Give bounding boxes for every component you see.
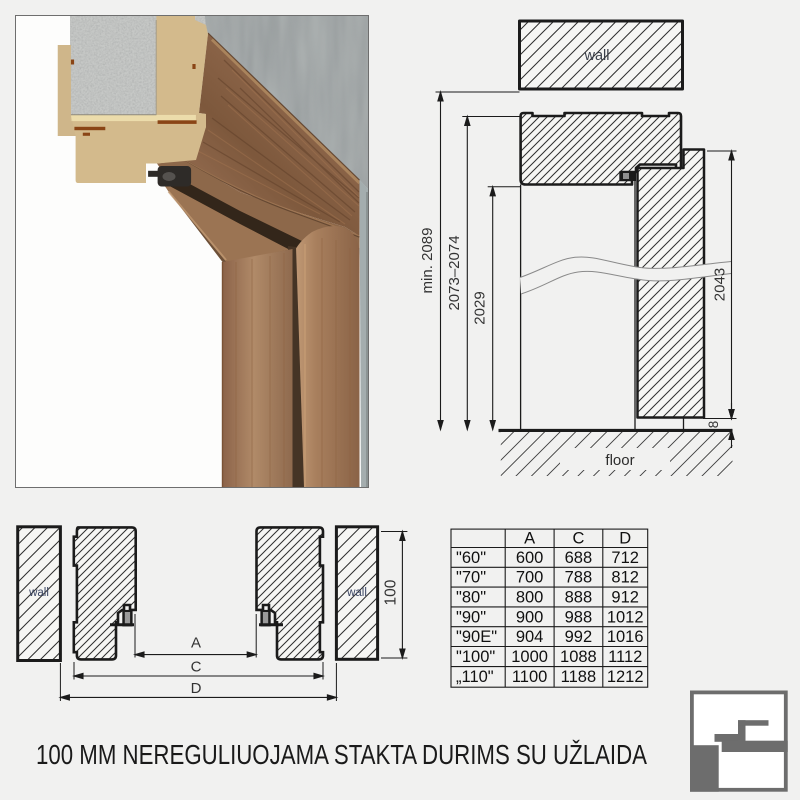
svg-text:800: 800 bbox=[516, 589, 544, 607]
svg-text:700: 700 bbox=[516, 569, 544, 587]
svg-text:1212: 1212 bbox=[607, 668, 644, 686]
svg-text:904: 904 bbox=[516, 628, 544, 646]
svg-text:1112: 1112 bbox=[608, 648, 642, 666]
svg-text:A: A bbox=[524, 530, 535, 548]
svg-text:992: 992 bbox=[565, 628, 593, 646]
svg-text:D: D bbox=[191, 680, 202, 697]
svg-text:wall: wall bbox=[584, 48, 610, 64]
svg-text:8: 8 bbox=[706, 421, 721, 429]
svg-text:600: 600 bbox=[516, 549, 544, 567]
svg-text:2029: 2029 bbox=[472, 291, 489, 324]
svg-text:"60": "60" bbox=[456, 549, 486, 567]
svg-text:C: C bbox=[572, 530, 584, 548]
svg-text:"90E": "90E" bbox=[456, 628, 497, 646]
svg-text:"100": "100" bbox=[456, 648, 495, 666]
svg-text:2043: 2043 bbox=[712, 268, 729, 301]
svg-text:1016: 1016 bbox=[607, 628, 644, 646]
svg-text:min. 2089: min. 2089 bbox=[419, 228, 436, 294]
svg-text:1000: 1000 bbox=[511, 648, 548, 666]
svg-text:wall: wall bbox=[346, 587, 367, 599]
svg-text:floor: floor bbox=[605, 452, 634, 469]
svg-text:788: 788 bbox=[565, 569, 593, 587]
svg-text:912: 912 bbox=[611, 589, 639, 607]
svg-text:„110": „110" bbox=[456, 668, 494, 686]
svg-text:812: 812 bbox=[611, 569, 639, 587]
svg-text:988: 988 bbox=[565, 608, 593, 626]
svg-text:"90": "90" bbox=[456, 608, 486, 626]
svg-text:900: 900 bbox=[516, 608, 544, 626]
svg-text:1012: 1012 bbox=[607, 608, 644, 626]
svg-text:C: C bbox=[191, 659, 202, 676]
svg-text:688: 688 bbox=[565, 549, 593, 567]
svg-text:1088: 1088 bbox=[560, 648, 597, 666]
svg-text:100 MM NEREGULIUOJAMA STAKTA D: 100 MM NEREGULIUOJAMA STAKTA DURIMS SU U… bbox=[36, 739, 648, 770]
svg-text:"80": "80" bbox=[456, 589, 486, 607]
svg-text:"70": "70" bbox=[456, 569, 486, 587]
svg-text:D: D bbox=[619, 530, 631, 548]
svg-text:A: A bbox=[191, 635, 201, 652]
svg-text:888: 888 bbox=[565, 589, 593, 607]
svg-text:wall: wall bbox=[28, 587, 49, 599]
svg-text:100: 100 bbox=[383, 579, 400, 605]
svg-text:1100: 1100 bbox=[512, 668, 547, 686]
svg-text:1188: 1188 bbox=[561, 668, 596, 686]
svg-text:2073–2074: 2073–2074 bbox=[446, 235, 463, 310]
svg-text:712: 712 bbox=[611, 549, 639, 567]
